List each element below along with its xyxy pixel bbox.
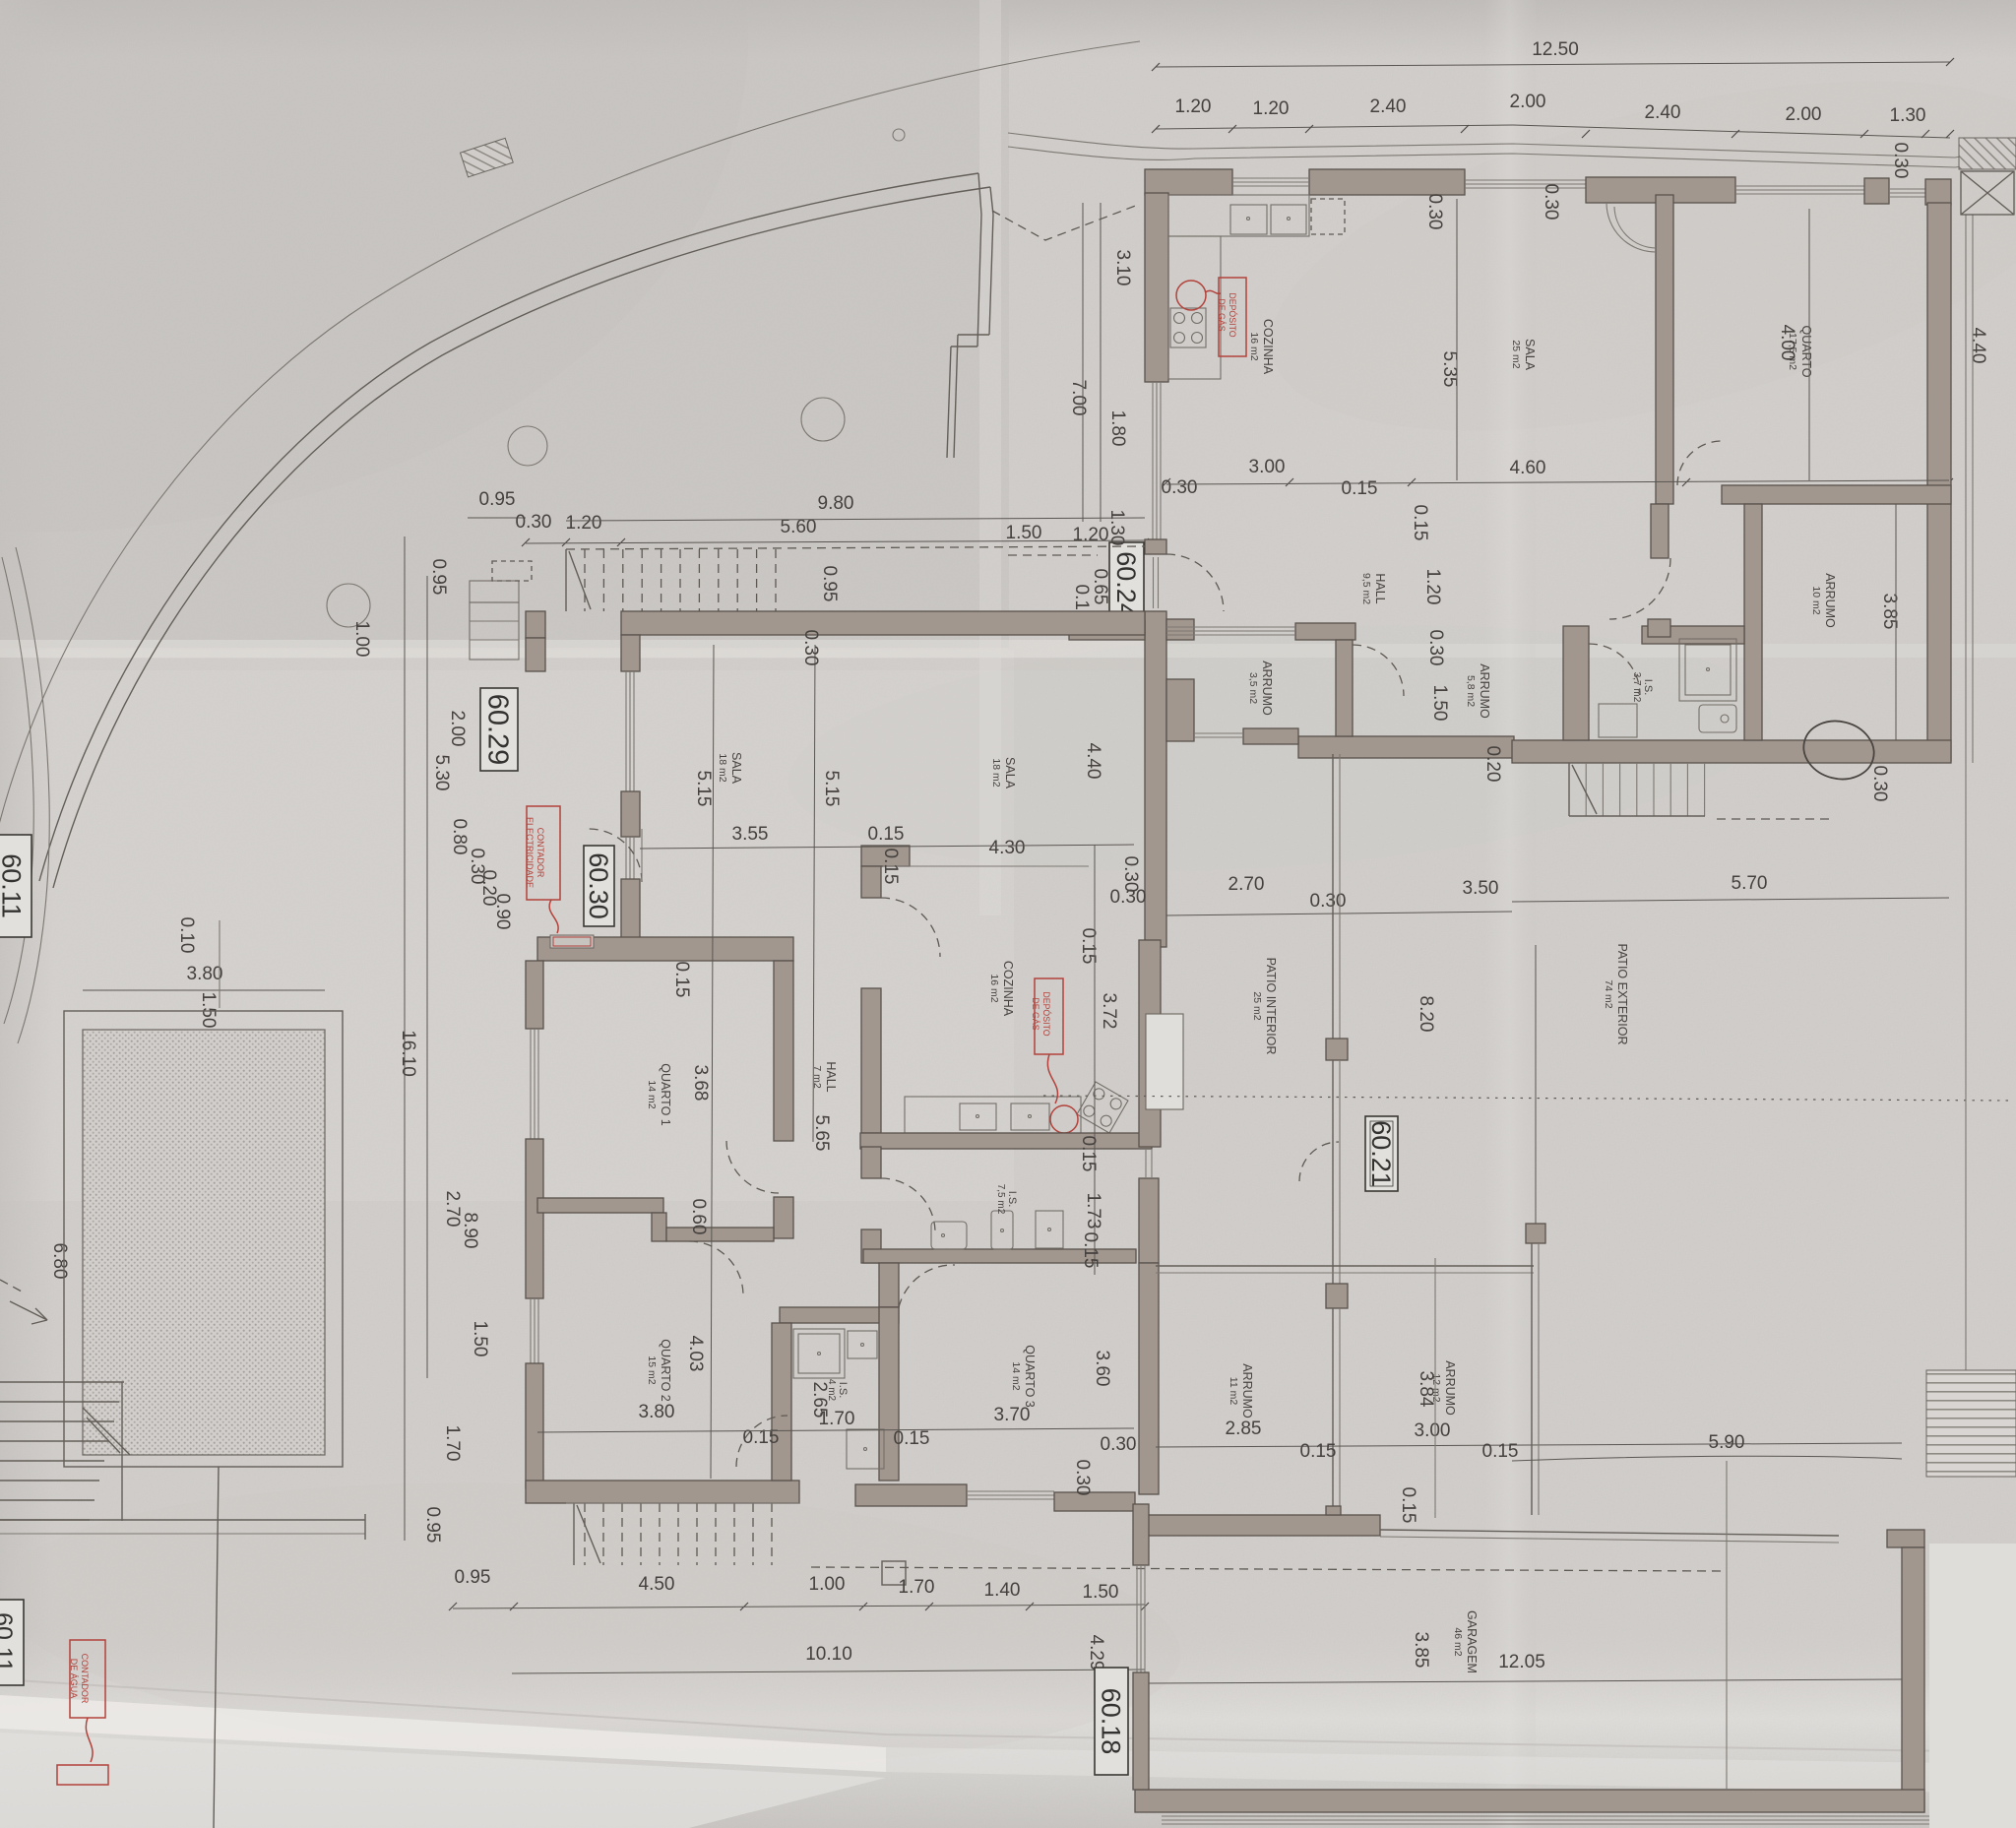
svg-text:0.15: 0.15 [894, 1428, 930, 1449]
svg-text:0.30: 0.30 [1541, 184, 1561, 221]
svg-text:11 m2: 11 m2 [1228, 1377, 1239, 1406]
svg-text:1.50: 1.50 [470, 1321, 490, 1357]
svg-text:1.73: 1.73 [1083, 1193, 1103, 1229]
svg-text:3.00: 3.00 [1415, 1420, 1451, 1441]
svg-text:8.20: 8.20 [1416, 996, 1436, 1033]
svg-text:3.10: 3.10 [1112, 250, 1133, 286]
svg-text:5.65: 5.65 [811, 1115, 832, 1152]
svg-text:60.24: 60.24 [1111, 551, 1141, 618]
svg-text:10.10: 10.10 [805, 1644, 852, 1665]
svg-text:4.29: 4.29 [1086, 1635, 1106, 1671]
svg-text:8.90: 8.90 [460, 1213, 480, 1249]
svg-text:0.80: 0.80 [449, 819, 470, 855]
svg-text:3.50: 3.50 [1463, 878, 1499, 899]
svg-text:1.70: 1.70 [899, 1577, 935, 1598]
svg-text:SALA: SALA [1523, 339, 1537, 371]
svg-text:3.70: 3.70 [994, 1405, 1031, 1425]
svg-text:ARRUMO: ARRUMO [1443, 1360, 1457, 1416]
svg-text:I.S.: I.S. [1006, 1191, 1018, 1208]
svg-text:3,7 m2: 3,7 m2 [1631, 672, 1642, 703]
svg-text:DEPÓSITO: DEPÓSITO [1228, 292, 1237, 337]
svg-text:3.80: 3.80 [639, 1402, 675, 1422]
svg-text:0.95: 0.95 [455, 1567, 491, 1588]
svg-text:0.30: 0.30 [1890, 143, 1911, 179]
svg-text:7,5 m2: 7,5 m2 [995, 1184, 1006, 1215]
svg-text:5.15: 5.15 [693, 771, 714, 807]
svg-text:0.15: 0.15 [1078, 928, 1099, 965]
svg-text:5.90: 5.90 [1709, 1432, 1745, 1453]
svg-text:2.00: 2.00 [1510, 92, 1546, 112]
svg-text:3.85: 3.85 [1411, 1632, 1431, 1669]
svg-text:4.30: 4.30 [989, 838, 1026, 858]
svg-text:HALL: HALL [1373, 573, 1387, 603]
svg-text:0.90: 0.90 [492, 894, 513, 930]
svg-text:2.85: 2.85 [1226, 1418, 1262, 1439]
svg-text:GARAGEM: GARAGEM [1465, 1610, 1479, 1673]
svg-text:0.60: 0.60 [688, 1199, 709, 1235]
svg-text:ARRUMO: ARRUMO [1260, 661, 1274, 716]
svg-text:2.65: 2.65 [809, 1382, 830, 1418]
svg-text:0.15: 0.15 [1410, 505, 1430, 541]
svg-text:9,5 m2: 9,5 m2 [1360, 573, 1372, 604]
svg-text:PATIO INTERIOR: PATIO INTERIOR [1264, 958, 1278, 1055]
svg-text:0.30: 0.30 [1110, 887, 1147, 908]
svg-text:3.68: 3.68 [690, 1065, 711, 1102]
svg-text:5,8 m2: 5,8 m2 [1465, 675, 1477, 707]
svg-text:0.15: 0.15 [868, 824, 905, 845]
svg-text:1.30: 1.30 [1890, 105, 1926, 126]
svg-text:ARRUMO: ARRUMO [1823, 573, 1837, 628]
svg-text:16.10: 16.10 [398, 1030, 418, 1077]
svg-text:60.30: 60.30 [584, 852, 613, 919]
svg-text:SALA: SALA [729, 752, 743, 785]
svg-text:0.30: 0.30 [1310, 891, 1347, 912]
svg-text:1.20: 1.20 [1253, 98, 1290, 119]
svg-text:1.70: 1.70 [442, 1425, 463, 1462]
svg-text:3.72: 3.72 [1099, 993, 1119, 1030]
svg-text:4.40: 4.40 [1968, 328, 1988, 364]
svg-text:QUARTO: QUARTO [1799, 325, 1813, 377]
svg-text:4.60: 4.60 [1510, 458, 1546, 478]
svg-text:0.95: 0.95 [479, 489, 516, 510]
svg-text:0.10: 0.10 [176, 917, 197, 954]
svg-text:25 m2: 25 m2 [1510, 340, 1522, 368]
svg-text:0.95: 0.95 [422, 1507, 443, 1544]
svg-text:25 m2: 25 m2 [1251, 991, 1263, 1020]
svg-text:18 m2: 18 m2 [717, 753, 728, 782]
svg-text:5.70: 5.70 [1732, 873, 1768, 894]
svg-text:4.03: 4.03 [685, 1336, 706, 1372]
svg-text:4.40: 4.40 [1083, 743, 1103, 780]
svg-text:1.50: 1.50 [1006, 523, 1042, 543]
svg-text:ARRUMO: ARRUMO [1240, 1363, 1254, 1418]
svg-text:1.20: 1.20 [1175, 96, 1212, 117]
svg-text:QUARTO 1: QUARTO 1 [659, 1063, 672, 1125]
svg-text:0.15: 0.15 [1080, 1232, 1101, 1269]
svg-text:CONTADOR: CONTADOR [535, 828, 545, 878]
svg-text:4.00: 4.00 [1777, 325, 1797, 361]
svg-text:1.20: 1.20 [1422, 569, 1443, 605]
svg-text:60.18: 60.18 [1096, 1688, 1125, 1755]
svg-text:10 m2: 10 m2 [1810, 586, 1822, 614]
svg-text:0.95: 0.95 [819, 566, 840, 602]
svg-text:3.55: 3.55 [732, 824, 769, 845]
svg-text:2.70: 2.70 [442, 1191, 463, 1228]
svg-text:3.85: 3.85 [1879, 594, 1900, 630]
svg-text:2.70: 2.70 [1228, 874, 1265, 895]
svg-text:2.40: 2.40 [1370, 96, 1407, 117]
svg-text:DEPÓSITO: DEPÓSITO [1041, 991, 1051, 1036]
svg-text:I.S.: I.S. [837, 1382, 849, 1399]
svg-text:46 m2: 46 m2 [1452, 1627, 1464, 1656]
svg-text:0.30: 0.30 [1101, 1434, 1137, 1455]
svg-text:1.00: 1.00 [351, 621, 372, 658]
svg-text:12.05: 12.05 [1498, 1652, 1545, 1672]
svg-text:6.80: 6.80 [49, 1243, 70, 1280]
svg-text:0.15: 0.15 [1078, 1136, 1099, 1172]
svg-text:0.15: 0.15 [880, 849, 901, 885]
svg-text:DE GÁS: DE GÁS [1217, 298, 1227, 331]
svg-text:ARRUMO: ARRUMO [1478, 663, 1491, 719]
svg-text:0.30: 0.30 [800, 630, 821, 666]
svg-text:0.65: 0.65 [1090, 569, 1110, 605]
svg-text:16 m2: 16 m2 [988, 974, 1000, 1002]
svg-text:HALL: HALL [824, 1061, 838, 1092]
svg-text:9.80: 9.80 [818, 493, 854, 514]
svg-text:3.60: 3.60 [1092, 1351, 1112, 1387]
svg-text:0.95: 0.95 [428, 559, 449, 596]
svg-text:QUARTO 2: QUARTO 2 [659, 1339, 672, 1401]
svg-text:2.00: 2.00 [447, 711, 468, 747]
svg-text:0.30: 0.30 [1162, 477, 1198, 498]
svg-text:1.20: 1.20 [1073, 525, 1109, 545]
svg-text:2.00: 2.00 [1786, 104, 1822, 125]
svg-text:0.30: 0.30 [1072, 1460, 1093, 1496]
svg-text:0.30: 0.30 [1424, 194, 1445, 230]
svg-text:I.S.: I.S. [1642, 679, 1654, 696]
svg-text:2.40: 2.40 [1645, 102, 1681, 123]
svg-text:3.80: 3.80 [187, 964, 223, 984]
svg-text:0.30: 0.30 [516, 512, 552, 533]
svg-text:16 m2: 16 m2 [1248, 332, 1260, 360]
svg-text:7.00: 7.00 [1068, 380, 1089, 416]
svg-text:5.15: 5.15 [821, 771, 842, 807]
svg-text:1.50: 1.50 [1429, 685, 1450, 722]
svg-text:DE GÁS: DE GÁS [1031, 997, 1040, 1030]
svg-text:60.11: 60.11 [0, 853, 26, 918]
svg-text:QUARTO 3: QUARTO 3 [1023, 1345, 1037, 1407]
svg-text:CONTADOR: CONTADOR [80, 1654, 90, 1704]
svg-text:0.20: 0.20 [1482, 746, 1503, 783]
svg-text:0.15: 0.15 [1482, 1441, 1519, 1462]
svg-text:14 m2: 14 m2 [646, 1080, 658, 1108]
svg-text:1.00: 1.00 [809, 1574, 846, 1595]
svg-text:SALA: SALA [1003, 757, 1017, 789]
svg-text:15 m2: 15 m2 [646, 1355, 658, 1384]
svg-text:60.11: 60.11 [0, 1612, 17, 1672]
svg-text:0.15: 0.15 [1300, 1441, 1337, 1462]
svg-text:4.50: 4.50 [639, 1574, 675, 1595]
svg-text:3.84: 3.84 [1416, 1371, 1436, 1408]
svg-text:0.15: 0.15 [1342, 478, 1378, 499]
svg-text:1.20: 1.20 [566, 513, 602, 534]
svg-text:5.30: 5.30 [431, 755, 452, 791]
svg-text:12.50: 12.50 [1532, 39, 1579, 60]
svg-text:DE ÁGUA: DE ÁGUA [69, 1659, 79, 1699]
svg-text:74 m2: 74 m2 [1603, 979, 1614, 1008]
svg-text:3.00: 3.00 [1249, 457, 1286, 477]
svg-text:0.15: 0.15 [1398, 1487, 1418, 1524]
svg-text:60.29: 60.29 [482, 694, 514, 766]
svg-text:0.30: 0.30 [1425, 630, 1446, 666]
svg-text:1.50: 1.50 [198, 992, 219, 1029]
svg-text:14 m2: 14 m2 [1010, 1361, 1022, 1390]
svg-text:COZINHA: COZINHA [1261, 319, 1275, 375]
svg-text:ELECTRICIDADE: ELECTRICIDADE [525, 817, 535, 888]
svg-text:1.80: 1.80 [1107, 410, 1128, 447]
svg-text:0.15: 0.15 [671, 962, 692, 998]
svg-text:18 m2: 18 m2 [990, 758, 1002, 787]
svg-text:COZINHA: COZINHA [1001, 961, 1015, 1017]
svg-text:1.40: 1.40 [984, 1580, 1021, 1601]
svg-text:3,5 m2: 3,5 m2 [1247, 672, 1259, 704]
svg-text:PATIO EXTERIOR: PATIO EXTERIOR [1615, 943, 1629, 1044]
svg-text:1.50: 1.50 [1083, 1582, 1119, 1603]
svg-text:0.30: 0.30 [1869, 766, 1890, 802]
